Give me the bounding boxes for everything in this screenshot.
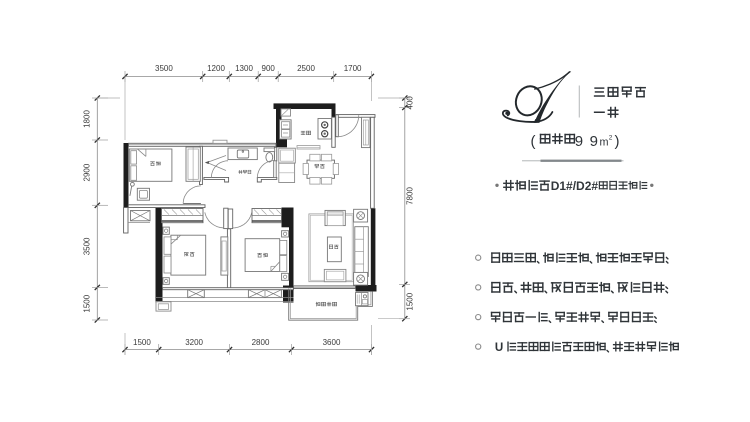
svg-text:2500: 2500 — [297, 64, 315, 73]
svg-text:3200: 3200 — [185, 338, 203, 347]
svg-text:3600: 3600 — [323, 338, 341, 347]
svg-text:1500: 1500 — [83, 294, 92, 312]
svg-text:400: 400 — [405, 96, 414, 110]
svg-text:3500: 3500 — [83, 237, 92, 255]
svg-text:): ) — [615, 133, 620, 150]
svg-text:900: 900 — [262, 64, 276, 73]
svg-text:(: ( — [531, 133, 536, 150]
svg-text:2900: 2900 — [83, 163, 92, 181]
svg-text:U: U — [495, 341, 503, 354]
svg-text:D1#/D2#: D1#/D2# — [551, 179, 599, 193]
svg-text:7800: 7800 — [405, 187, 414, 205]
svg-text:1300: 1300 — [235, 64, 253, 73]
svg-text:m: m — [600, 137, 609, 149]
svg-text:2800: 2800 — [252, 338, 270, 347]
svg-text:1500: 1500 — [405, 292, 414, 310]
svg-text:9 9: 9 9 — [575, 133, 599, 150]
svg-text:1200: 1200 — [207, 64, 225, 73]
svg-text:1700: 1700 — [344, 64, 362, 73]
svg-text:2: 2 — [609, 135, 613, 142]
svg-text:1500: 1500 — [133, 338, 151, 347]
svg-text:3500: 3500 — [155, 64, 173, 73]
svg-text:1800: 1800 — [83, 110, 92, 128]
